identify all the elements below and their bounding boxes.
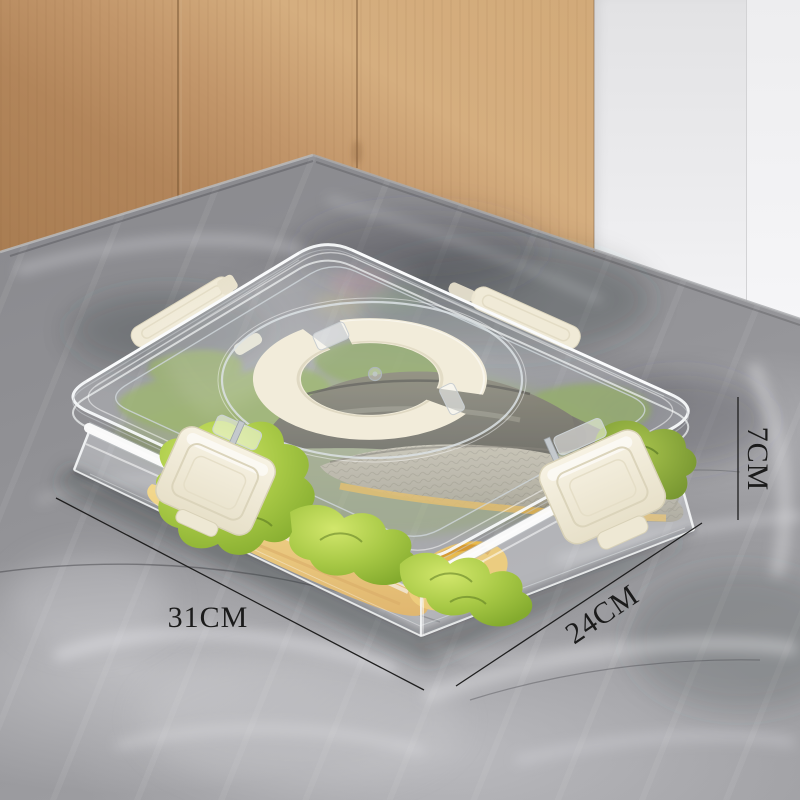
product-photo: 31CM 24CM 7CM bbox=[0, 0, 800, 800]
photo-artwork: 31CM 24CM 7CM bbox=[0, 0, 800, 800]
dimension-label-height: 7CM bbox=[741, 427, 774, 492]
dimension-label-length: 31CM bbox=[168, 601, 249, 634]
